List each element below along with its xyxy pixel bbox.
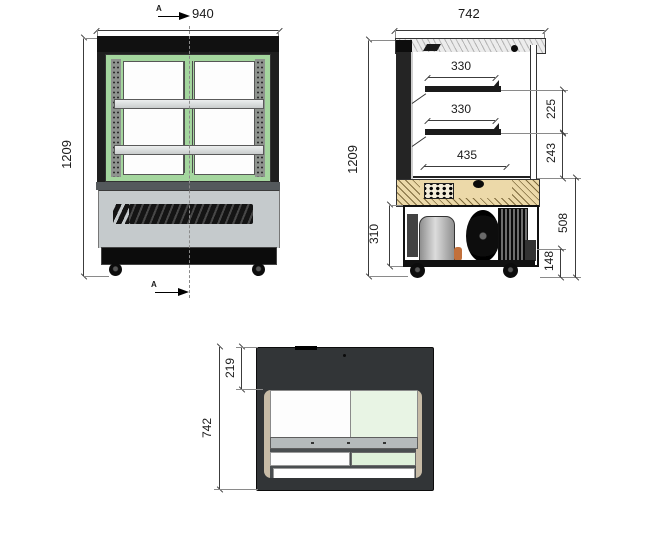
section-marker-a-top: A [156,4,162,13]
side-wood-base [396,179,540,207]
grille-slash-detail [113,204,129,224]
shelf-support-strip-left [111,59,121,177]
caster-side-right [503,263,518,278]
ext-line [236,347,258,348]
front-counter-band [96,182,280,190]
base-section-height-label: 508 [557,213,569,233]
compressor [419,216,455,263]
top-rail-bar [270,437,418,449]
shelf-middle-depth-label: 330 [451,103,471,115]
ext-line [501,133,568,134]
caster-front-right [252,263,265,276]
gap-top-shelf-line [562,90,563,133]
rail-mark [311,442,314,444]
side-front-glass [530,45,537,183]
caster-front-left [109,263,122,276]
condenser-fan [466,210,500,262]
shelf-top-depth-label: 330 [451,60,471,72]
machine-height-line [389,205,390,266]
gap-middle-shelf-line [562,133,563,178]
orange-component [454,247,462,261]
shelf-support-strip-right [255,59,265,177]
side-deck-line [413,176,530,178]
top-band-right [351,452,416,466]
ext-line [389,205,403,206]
side-top-hinge-dot [511,45,518,52]
machine-right-box [525,240,536,261]
top-band-left [270,452,350,466]
drain-detail [473,180,484,188]
front-centerline [189,26,190,298]
rail-mark [347,442,350,444]
side-height-dim-label: 1209 [346,145,359,174]
top-view-recess [264,390,422,478]
ext-line [501,90,568,91]
machine-height-label: 310 [368,224,380,244]
ext-line [214,489,258,490]
side-shelf-2 [425,129,501,135]
top-glass-right [350,390,418,438]
condenser-coil [498,208,528,262]
top-surface-dot [343,354,346,357]
front-view-cabinet [97,36,279,263]
top-glass-left [270,390,352,438]
front-height-dim-label: 1209 [60,140,73,169]
section-arrow-head-bottom-icon [178,288,189,296]
ventilation-grille [129,204,253,224]
caster-side-left [410,263,425,278]
caster-height-label: 148 [543,251,555,271]
gap-top-shelf-label: 225 [545,99,557,119]
top-front-margin-line [241,347,242,389]
ext-line [83,276,109,277]
ext-line [368,40,395,41]
top-view-body [256,347,434,491]
section-marker-a-bottom: A [151,280,157,289]
caster-height-line [560,249,561,277]
ext-line [544,30,545,38]
top-edge-tab [295,346,317,350]
center-mullion-edge [184,61,185,173]
side-shelf-1 [425,86,501,92]
front-glass-frame [105,54,271,182]
front-height-dim-line [83,38,84,276]
top-bottom-strip [273,468,415,478]
gap-middle-shelf-label: 243 [545,143,557,163]
shelf-top-depth-line [428,77,495,78]
ext-line [83,38,97,39]
side-width-dim-line [395,30,545,31]
side-width-dim-label: 742 [458,7,480,20]
deck-depth-line [424,166,506,167]
side-shelf-2-lip-icon [493,123,499,130]
rail-mark [383,442,386,444]
ext-line [395,30,396,38]
side-back-wall [396,52,413,185]
section-arrow-head-top-icon [179,12,190,20]
front-glass-pane-left [123,61,184,175]
front-width-dim-line [97,30,279,31]
top-front-margin-label: 219 [224,358,236,378]
deck-depth-label: 435 [457,149,477,161]
front-display-surround [97,52,279,182]
front-width-dim-label: 940 [192,7,214,20]
shelf-middle-depth-line [428,120,495,121]
top-depth-label: 742 [201,418,213,438]
front-glass-pane-right [194,61,255,175]
ext-line [236,389,263,390]
perforated-plate [424,183,454,199]
machine-side-plate [407,214,418,257]
side-shelf-1-lip-icon [493,80,499,87]
ext-line [389,266,403,267]
machine-compartment [403,205,539,267]
base-section-height-line [575,178,576,277]
technical-drawing-canvas: A 940 1209 [0,0,669,544]
center-mullion-edge [192,61,193,173]
front-canopy [97,36,279,52]
top-depth-line [219,347,220,489]
